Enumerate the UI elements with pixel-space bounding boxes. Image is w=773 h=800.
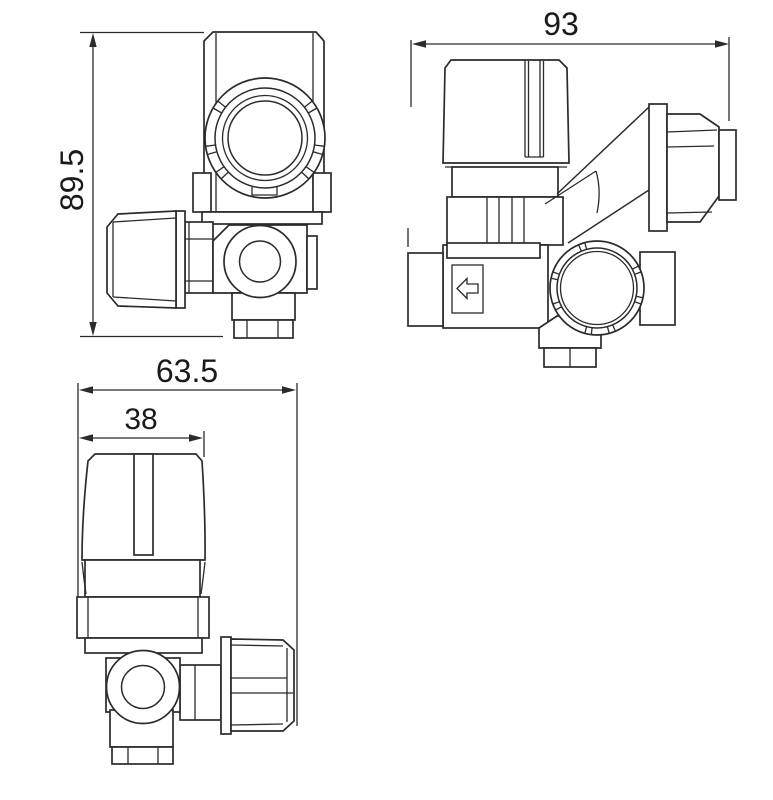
dimension-top-knob-width: 38 <box>79 403 204 457</box>
knob-neck <box>85 560 200 597</box>
connector-flange <box>176 211 185 308</box>
body-flange-strip <box>447 243 540 258</box>
knob-neck <box>452 167 558 197</box>
connector-flange <box>221 637 231 734</box>
arrowhead-icon <box>89 322 96 336</box>
arrowhead-icon <box>412 40 426 47</box>
arrowhead-icon <box>715 40 729 47</box>
thermostat-knob-side <box>443 60 569 197</box>
diagonal-branch <box>545 104 736 243</box>
outlet-port-top <box>106 651 180 765</box>
tapered-nut <box>107 211 176 308</box>
technical-drawing-page: 89.5 <box>0 0 773 800</box>
dimension-label-top-overall-width: 63.5 <box>156 353 218 389</box>
inlet-connector-front <box>107 211 213 308</box>
pipe-end-cap <box>408 253 443 326</box>
outlet-pipe-side <box>640 252 675 325</box>
branch-flange <box>649 104 667 231</box>
inlet-pipe-side <box>408 243 548 328</box>
arrowhead-icon <box>189 434 203 441</box>
knob-side-tab <box>193 173 211 212</box>
tapered-nut <box>231 639 294 731</box>
union-nut-ring <box>550 241 644 335</box>
knob-side-tab <box>313 173 331 212</box>
dimension-label-front-height: 89.5 <box>54 149 90 211</box>
outlet-port-front <box>224 226 296 298</box>
valve-orthographic-drawing: 89.5 <box>0 0 773 800</box>
knob-slot <box>134 454 153 555</box>
arrowhead-icon <box>89 33 96 47</box>
arrowhead-icon <box>79 434 93 441</box>
body-side-tab <box>307 236 317 289</box>
dimension-label-top-knob-width: 38 <box>124 403 157 436</box>
knob-ring-face <box>205 78 325 198</box>
thermostat-knob-top <box>82 454 205 597</box>
valve-body-top <box>77 597 209 653</box>
arrowhead-icon <box>79 386 93 393</box>
branch-end-cap <box>719 130 736 200</box>
front-view: 89.5 <box>54 32 331 338</box>
side-view: 93 <box>408 6 736 367</box>
arrowhead-icon <box>282 386 296 393</box>
dimension-label-side-width: 93 <box>543 6 579 42</box>
top-view: 63.5 38 <box>77 353 297 764</box>
knob-collar <box>202 212 322 224</box>
